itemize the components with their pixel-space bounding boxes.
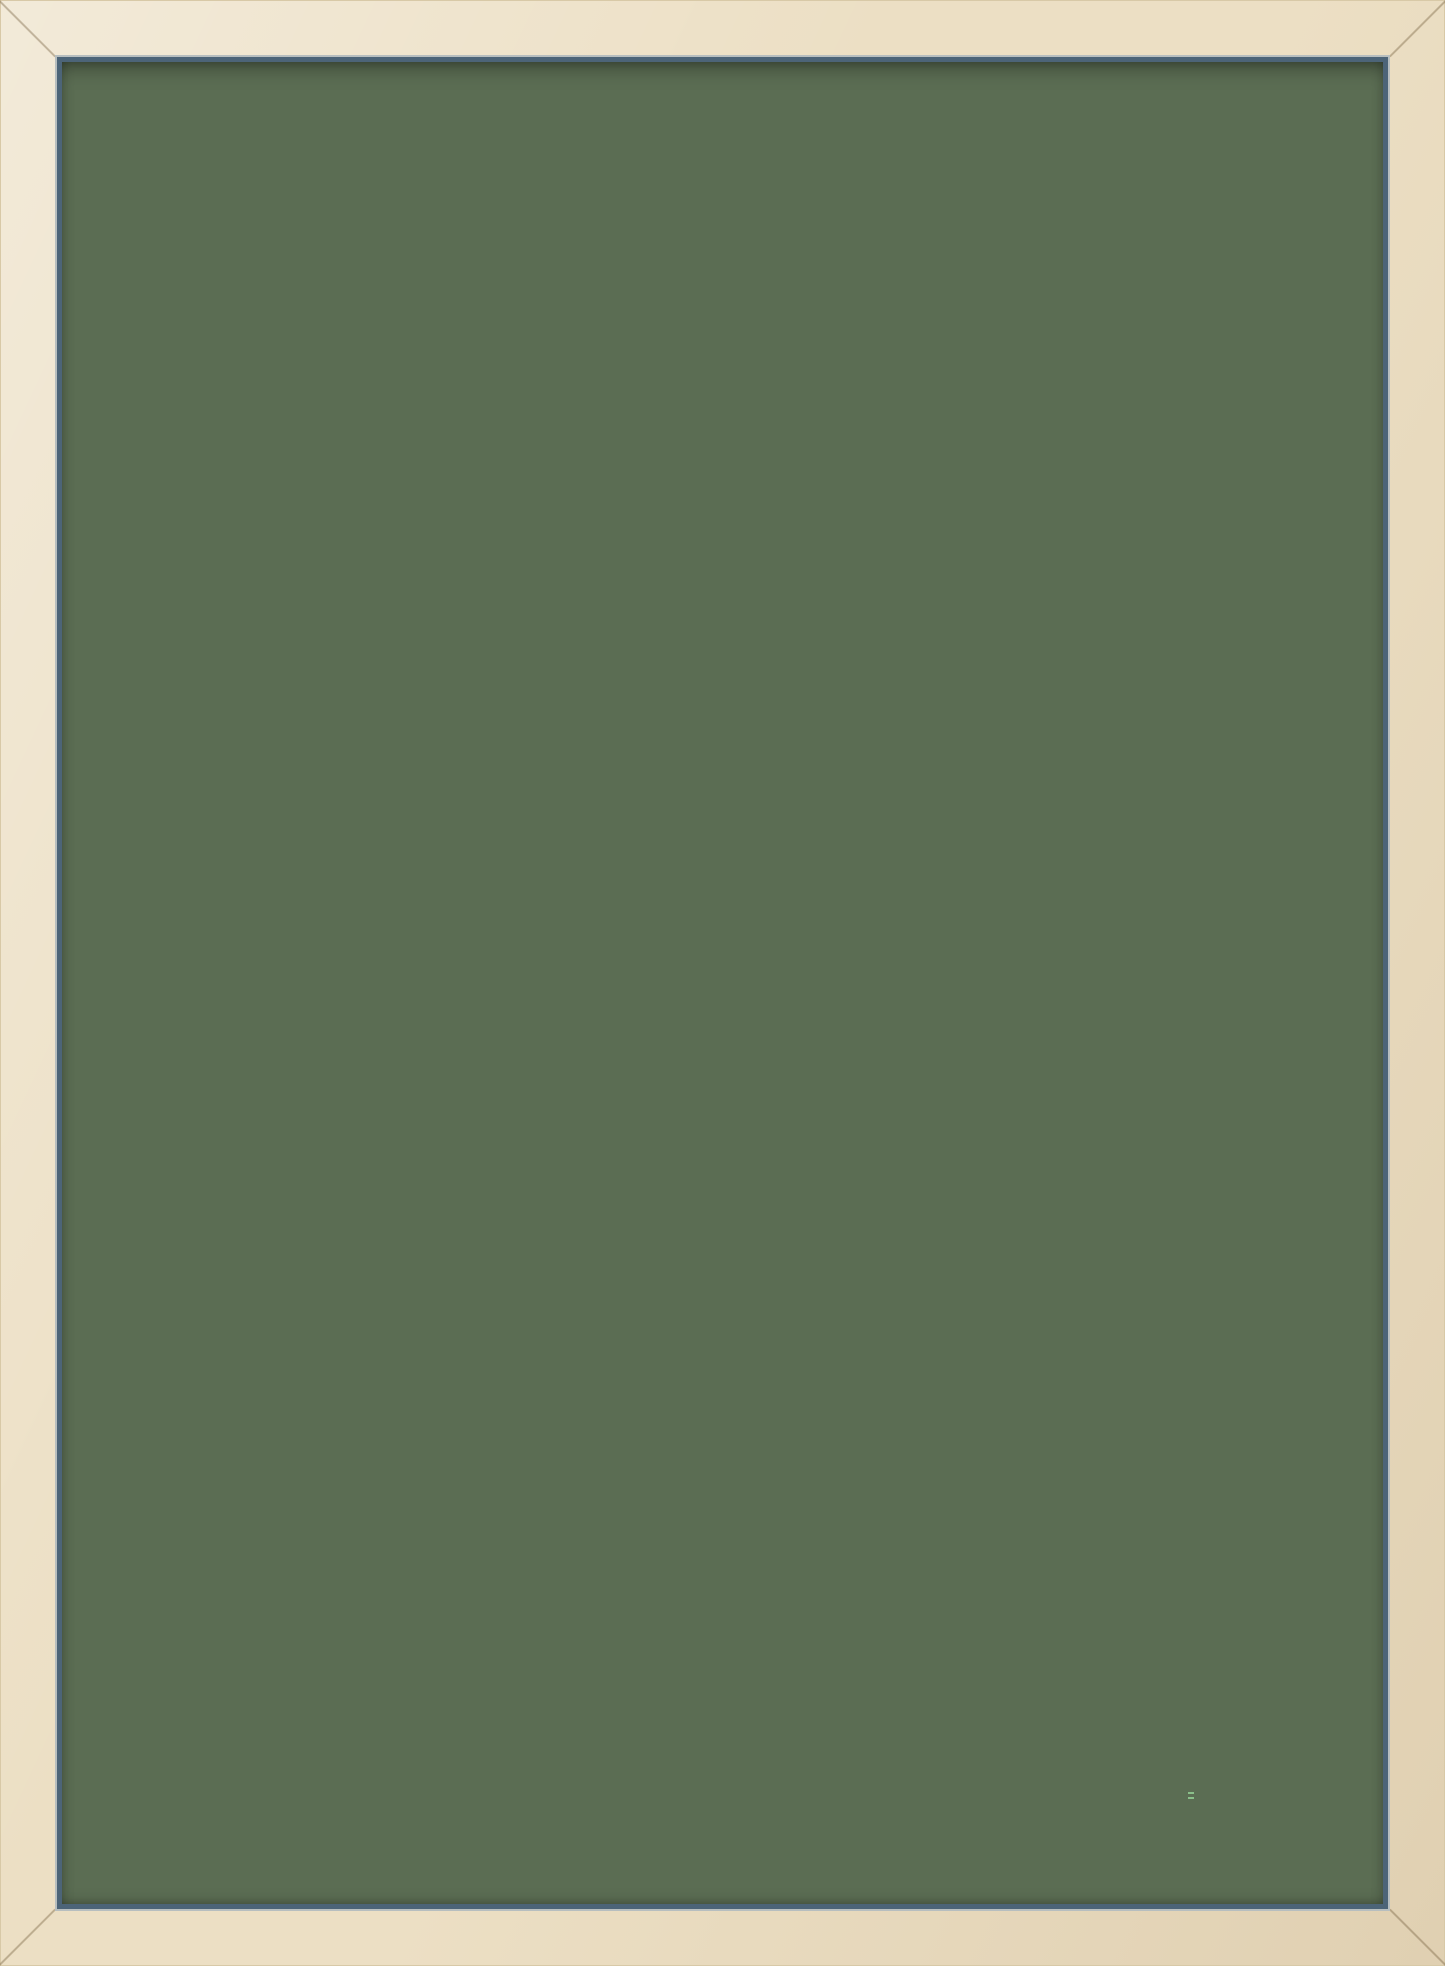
map-canvas — [62, 62, 1383, 1904]
framed-map-poster — [0, 0, 1445, 1966]
brand-logo — [1191, 1789, 1194, 1799]
brand-logo-rest — [1188, 1792, 1194, 1799]
